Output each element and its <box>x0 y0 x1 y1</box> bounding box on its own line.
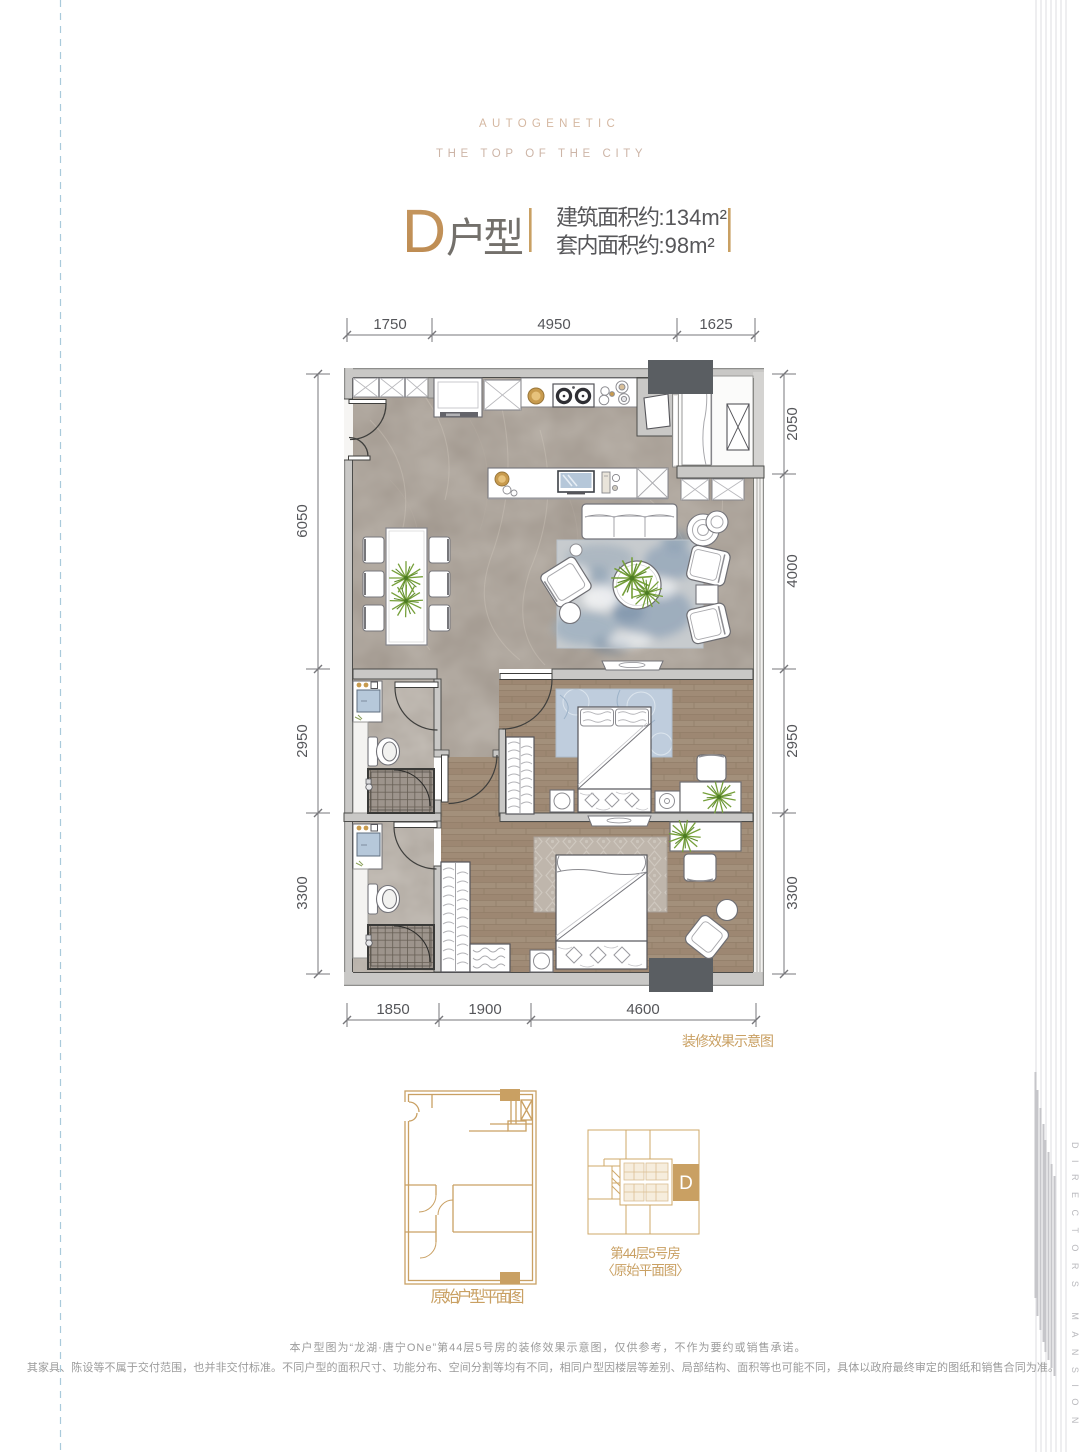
svg-text:3300: 3300 <box>784 876 801 909</box>
svg-text:原始户型平面图: 原始户型平面图 <box>430 1288 523 1306</box>
svg-text:2950: 2950 <box>784 724 801 757</box>
svg-text:〈原始平面图〉: 〈原始平面图〉 <box>601 1263 689 1278</box>
svg-text:D: D <box>402 197 446 265</box>
svg-text:6050: 6050 <box>294 504 311 537</box>
svg-text:D: D <box>679 1173 693 1194</box>
svg-text:1900: 1900 <box>468 1001 501 1018</box>
svg-text:装修效果示意图: 装修效果示意图 <box>682 1033 773 1049</box>
svg-text:2050: 2050 <box>784 407 801 440</box>
svg-text:4600: 4600 <box>626 1001 659 1018</box>
svg-text:2950: 2950 <box>294 724 311 757</box>
svg-text:1625: 1625 <box>699 316 732 333</box>
svg-text:套内面积约:98m²: 套内面积约:98m² <box>556 233 715 258</box>
svg-text:户型: 户型 <box>446 215 523 261</box>
svg-text:4000: 4000 <box>784 554 801 587</box>
svg-text:本户型图为“龙湖·唐宁ONe”第44层5号房的装修效果示意图: 本户型图为“龙湖·唐宁ONe”第44层5号房的装修效果示意图，仅供参考，不作为要… <box>290 1340 807 1354</box>
svg-text:AUTOGENETIC: AUTOGENETIC <box>479 118 620 130</box>
svg-text:第44层5号房: 第44层5号房 <box>610 1245 680 1261</box>
svg-text:THE TOP OF THE CITY: THE TOP OF THE CITY <box>436 148 647 160</box>
svg-text:其家具、陈设等不属于交付范围，也并非交付标准。不同户型的面积: 其家具、陈设等不属于交付范围，也并非交付标准。不同户型的面积尺寸、功能分布、空间… <box>27 1360 1059 1374</box>
svg-text:1750: 1750 <box>373 316 406 333</box>
svg-text:DIRECTORS MANSION: DIRECTORS MANSION <box>1070 1142 1080 1435</box>
svg-text:3300: 3300 <box>294 876 311 909</box>
svg-text:建筑面积约:134m²: 建筑面积约:134m² <box>556 205 727 230</box>
svg-text:4950: 4950 <box>537 316 570 333</box>
svg-text:1850: 1850 <box>376 1001 409 1018</box>
